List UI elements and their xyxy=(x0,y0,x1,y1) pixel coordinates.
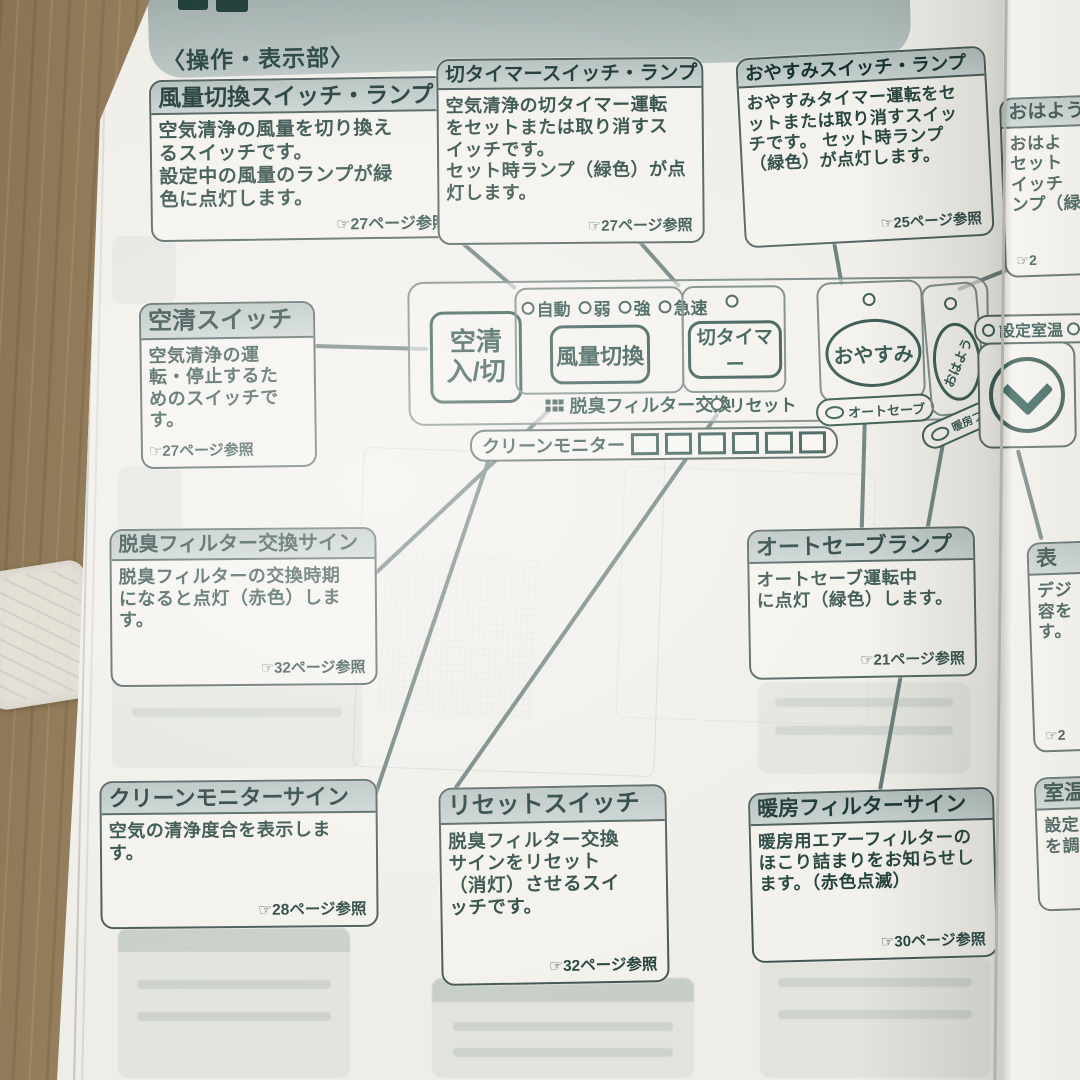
callout-title: オートセーブランプ xyxy=(749,528,974,564)
set-temp-lamp2-icon xyxy=(1067,322,1080,335)
callout-title: おはよう xyxy=(1001,96,1080,129)
wake-button-label: おはよう xyxy=(938,334,976,389)
deodorize-filter-label: 脱臭フィルター交換 xyxy=(569,391,731,419)
clean-monitor-segment xyxy=(664,433,692,455)
cut-off-title-glyph xyxy=(178,0,208,10)
callout-body: 空気清浄の運 転・停止するた めのスイッチで す。 xyxy=(141,337,314,432)
callout-title: 脱臭フィルター交換サイン xyxy=(111,529,374,561)
set-room-temp-bar: 設定室温 xyxy=(974,313,1080,345)
reset-label: リセット xyxy=(728,391,796,417)
wake-lamp-icon xyxy=(943,297,957,311)
page-reference: ☞25ページ参照 xyxy=(746,206,993,246)
set-temp-lamp-icon xyxy=(982,323,995,336)
clean-monitor-bar: クリーンモニター xyxy=(470,426,838,462)
off-timer-lamp-icon xyxy=(725,295,738,308)
callout-title: 空清スイッチ xyxy=(141,303,313,340)
reset-indicator: リセット xyxy=(710,391,796,417)
callout-body: 脱臭フィルター交換 サインをリセット （消灯）させるスイ ッチです。 xyxy=(441,821,667,920)
callout-filter-sign: 脱臭フィルター交換サイン 脱臭フィルターの交換時期 になると点灯（赤色）しま す… xyxy=(109,527,377,687)
callout-off-timer: 切タイマースイッチ・ランプ 空気清浄の切タイマー運転 をセットまたは取り消すス … xyxy=(436,57,705,245)
callout-title: リセットスイッチ xyxy=(440,786,665,824)
lamp-dot-icon xyxy=(578,301,591,314)
page-reference: ☞21ページ参照 xyxy=(751,647,975,678)
photo-of-manual-page: 〈操作・表示部〉 空清 入/切 自動 弱 強 急速 風量切換 切タイマー xyxy=(0,0,1080,1080)
connector-line xyxy=(1016,449,1043,540)
cut-off-title-glyph xyxy=(216,0,248,12)
showthrough-box xyxy=(118,928,350,1078)
filter-grid-icon xyxy=(546,400,564,412)
showthrough-box xyxy=(432,978,694,1078)
callout-title: 表 xyxy=(1028,541,1080,576)
sleep-button: おやすみ xyxy=(824,317,922,388)
clean-monitor-segment xyxy=(631,433,659,455)
callout-wake-switch-cut: おはよう おはよ セット イッチ ンプ（緑 ☞2 xyxy=(999,94,1080,278)
callout-title: 切タイマースイッチ・ランプ xyxy=(438,59,701,91)
chevron-down-icon xyxy=(1001,363,1053,415)
clean-monitor-label: クリーンモニター xyxy=(482,431,625,458)
callout-reset-switch: リセットスイッチ 脱臭フィルター交換 サインをリセット （消灯）させるスイ ッチ… xyxy=(438,784,669,986)
showthrough-box xyxy=(760,958,990,1078)
deodorize-filter-indicator: 脱臭フィルター交換 xyxy=(545,391,731,419)
callout-clean-monitor: クリーンモニターサイン 空気の清浄度合を表示しま す。 ☞28ページ参照 xyxy=(99,779,378,929)
sleep-switch-group: おやすみ xyxy=(816,279,926,403)
callout-body: 空気の清浄度合を表示しま す。 xyxy=(102,813,376,865)
callout-heater-filter-sign: 暖房フィルターサイン 暖房用エアーフィルターの ほこり詰まりをお知らせし ます。… xyxy=(748,787,998,963)
callout-body: デジ 容を す。 xyxy=(1030,572,1080,643)
page-reference: ☞32ページ参照 xyxy=(443,952,667,984)
callout-sleep-switch: おやすみスイッチ・ランプ おやすみタイマー運転をセ ットまたは取り消すスイッ チ… xyxy=(735,46,995,249)
page-reference: ☞2 xyxy=(1035,724,1080,750)
clean-monitor-segment xyxy=(765,432,793,454)
page-reference: ☞27ページ参照 xyxy=(143,438,315,467)
fan-speed-button: 風量切換 xyxy=(550,325,651,385)
off-timer-button: 切タイマー xyxy=(688,320,783,379)
page-reference: ☞27ページ参照 xyxy=(440,214,703,243)
temp-down-button xyxy=(977,341,1077,449)
autosave-pill: オートセーブ xyxy=(815,393,935,427)
callout-autosave-lamp: オートセーブランプ オートセーブ運転中 に点灯（緑色）します。 ☞21ページ参照 xyxy=(747,526,978,680)
page-reference: ☞2 xyxy=(1006,249,1080,276)
callout-body: おやすみタイマー運転をセ ットまたは取り消すスイッ チです。 セット時ランプ （… xyxy=(739,76,989,176)
autosave-lamp-icon xyxy=(825,405,845,419)
showthrough-box xyxy=(112,236,176,304)
callout-body: おはよ セット イッチ ンプ（緑 xyxy=(1002,125,1080,216)
manual-page: 〈操作・表示部〉 空清 入/切 自動 弱 強 急速 風量切換 切タイマー xyxy=(0,0,1080,1080)
callout-fan-switch: 風量切換スイッチ・ランプ 空気清浄の風量を切り換え るスイッチです。 設定中の風… xyxy=(149,76,460,242)
lamp-dot-icon xyxy=(521,302,534,315)
callout-body: 脱臭フィルターの交換時期 になると点灯（赤色）しま す。 xyxy=(112,559,376,632)
callout-body: 暖房用エアーフィルターの ほこり詰まりをお知らせし ます。（赤色点滅） xyxy=(751,820,995,895)
clean-monitor-segment xyxy=(731,432,759,454)
reset-lamp-icon xyxy=(710,398,723,411)
fan-lamp-low: 弱 xyxy=(578,295,610,320)
fan-lamp-auto: 自動 xyxy=(521,295,570,321)
fan-lamp-label: 自動 xyxy=(536,295,570,320)
callout-body: 設定 を調 xyxy=(1037,808,1080,858)
callout-room-temp-cut: 室温 設定 を調 xyxy=(1034,774,1080,911)
callout-body: 空気清浄の切タイマー運転 をセットまたは取り消すス イッチです。 セット時ランプ… xyxy=(438,88,702,204)
page-reference: ☞28ページ参照 xyxy=(102,897,376,927)
callout-title: 室温 xyxy=(1036,776,1080,810)
section-heading: 〈操作・表示部〉 xyxy=(162,38,355,76)
air-clean-power-button: 空清 入/切 xyxy=(430,311,523,404)
filter-mesh-art xyxy=(378,552,542,718)
callout-title: クリーンモニターサイン xyxy=(101,781,375,816)
clean-monitor-segment xyxy=(798,431,826,453)
heater-filter-lamp-icon xyxy=(929,424,952,444)
fan-speed-lamps: 自動 弱 強 急速 xyxy=(521,294,707,321)
set-temp-label: 設定室温 xyxy=(999,317,1063,342)
sleep-lamp-icon xyxy=(862,293,875,306)
autosave-pill-label: オートセーブ xyxy=(848,398,926,421)
fan-lamp-high: 強 xyxy=(618,295,650,320)
callout-air-clean-switch: 空清スイッチ 空気清浄の運 転・停止するた めのスイッチで す。 ☞27ページ参… xyxy=(139,301,317,469)
fan-lamp-label: 弱 xyxy=(593,295,610,320)
callout-body: 空気清浄の風量を切り換え るスイッチです。 設定中の風量のランプが緑 色に点灯し… xyxy=(151,111,457,212)
fan-lamp-label: 強 xyxy=(633,295,650,320)
lamp-dot-icon xyxy=(618,301,631,314)
lamp-dot-icon xyxy=(658,300,671,313)
callout-title: 風量切換スイッチ・ランプ xyxy=(151,78,456,116)
callout-display-cut: 表 デジ 容を す。 ☞2 xyxy=(1026,539,1080,753)
page-reference: ☞27ページ参照 xyxy=(153,208,458,242)
page-reference: ☞30ページ参照 xyxy=(754,928,997,961)
page-reference: ☞32ページ参照 xyxy=(112,656,375,685)
callout-body: オートセーブ運転中 に点灯（緑色）します。 xyxy=(749,560,974,612)
clean-monitor-segment xyxy=(698,432,726,454)
